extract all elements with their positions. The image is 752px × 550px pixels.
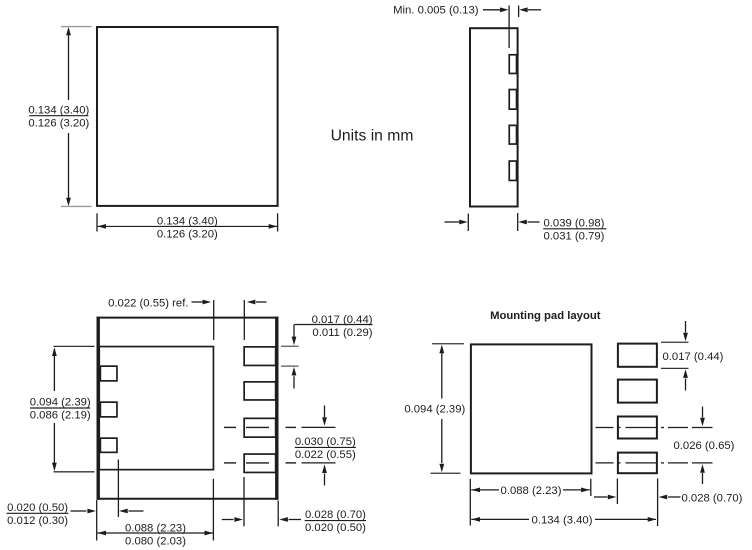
svg-text:0.020 (0.50): 0.020 (0.50) (305, 522, 366, 534)
svg-text:0.017 (0.44): 0.017 (0.44) (312, 314, 373, 326)
svg-text:0.126 (3.20): 0.126 (3.20) (157, 229, 218, 241)
svg-text:Mounting pad layout: Mounting pad layout (490, 310, 601, 322)
svg-text:0.017 (0.44): 0.017 (0.44) (663, 351, 724, 363)
svg-text:0.022 (0.55): 0.022 (0.55) (295, 449, 356, 461)
svg-text:0.028 (0.70): 0.028 (0.70) (305, 509, 366, 521)
svg-text:0.011 (0.29): 0.011 (0.29) (312, 327, 372, 339)
svg-text:0.039 (0.98): 0.039 (0.98) (544, 217, 605, 229)
svg-text:Min. 0.005 (0.13): Min. 0.005 (0.13) (393, 4, 479, 16)
svg-text:0.126 (3.20): 0.126 (3.20) (28, 117, 89, 129)
svg-text:0.020 (0.50): 0.020 (0.50) (7, 502, 68, 514)
svg-text:0.012 (0.30): 0.012 (0.30) (7, 515, 68, 527)
svg-text:0.088 (2.23): 0.088 (2.23) (125, 522, 186, 534)
svg-text:0.088 (2.23): 0.088 (2.23) (501, 485, 562, 497)
svg-text:0.134 (3.40): 0.134 (3.40) (28, 104, 89, 116)
svg-text:0.134 (3.40): 0.134 (3.40) (157, 215, 218, 227)
svg-text:0.031 (0.79): 0.031 (0.79) (544, 230, 605, 242)
svg-text:Units in mm: Units in mm (331, 127, 414, 144)
svg-text:0.022 (0.55) ref.: 0.022 (0.55) ref. (108, 297, 188, 309)
svg-text:0.080 (2.03): 0.080 (2.03) (125, 535, 186, 547)
svg-text:0.030 (0.75): 0.030 (0.75) (295, 436, 356, 448)
svg-text:0.026 (0.65): 0.026 (0.65) (674, 440, 735, 452)
svg-text:0.094 (2.39): 0.094 (2.39) (404, 403, 465, 415)
svg-text:0.094 (2.39): 0.094 (2.39) (30, 397, 91, 409)
svg-text:0.134 (3.40): 0.134 (3.40) (532, 514, 593, 526)
svg-text:0.028 (0.70): 0.028 (0.70) (682, 493, 743, 505)
svg-text:0.086 (2.19): 0.086 (2.19) (30, 410, 91, 422)
